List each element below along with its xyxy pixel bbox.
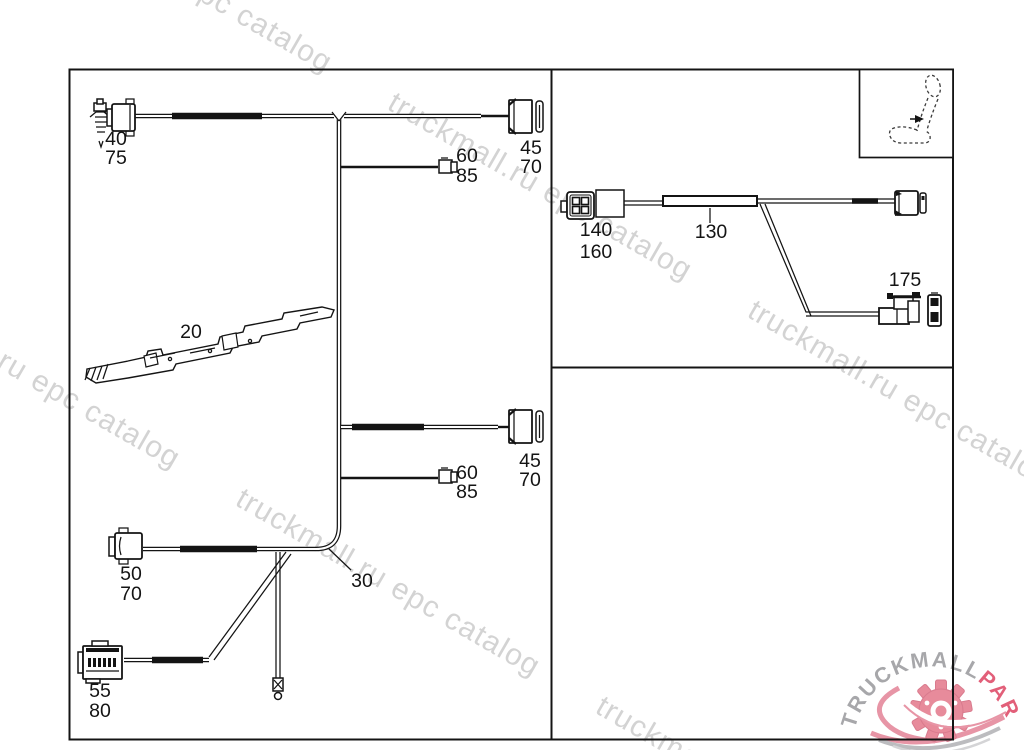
seat-reference-box — [860, 70, 954, 158]
callout-80[interactable]: 80 — [89, 700, 111, 722]
callout-30[interactable]: 30 — [351, 570, 373, 592]
diagram-canvas: TRUCKMALLPARTS — [0, 0, 1024, 750]
connector-50-70 — [109, 528, 142, 564]
connector-housing-box — [596, 190, 624, 217]
callout-130[interactable]: 130 — [695, 221, 728, 243]
connector-60-85-mid — [439, 468, 457, 483]
callout-55[interactable]: 55 — [89, 680, 111, 702]
panel-frame — [70, 70, 954, 740]
callout-175[interactable]: 175 — [889, 269, 922, 291]
callout-70-top[interactable]: 70 — [520, 156, 542, 178]
callout-85-mid[interactable]: 85 — [456, 481, 478, 503]
callout-85-top[interactable]: 85 — [456, 165, 478, 187]
epc-catalog-diagram-page: truckmall.ru epc catalogtruckmall.ru epc… — [0, 0, 1024, 750]
callout-labels: 40 75 45 70 60 85 20 45 70 60 85 50 70 3… — [89, 128, 921, 722]
connector-55-80 — [78, 641, 122, 683]
callout-160[interactable]: 160 — [580, 241, 613, 263]
callout-70-bottom[interactable]: 70 — [120, 583, 142, 605]
terminal-end — [273, 678, 283, 700]
connector-175 — [879, 292, 941, 326]
seat-rail-part-20 — [85, 307, 334, 383]
leader-line-30 — [329, 549, 351, 570]
callout-60-top[interactable]: 60 — [456, 145, 478, 167]
callout-75[interactable]: 75 — [105, 147, 127, 169]
callout-20[interactable]: 20 — [180, 321, 202, 343]
callout-140[interactable]: 140 — [580, 219, 613, 241]
callout-70-mid[interactable]: 70 — [519, 469, 541, 491]
adapter-harness-wiring — [597, 196, 896, 316]
connector-45-70-mid — [509, 409, 543, 444]
connector-140-160 — [561, 190, 624, 219]
connector-top-right-end — [895, 191, 926, 216]
wire-sleeve-130 — [663, 196, 757, 206]
callout-50[interactable]: 50 — [120, 563, 142, 585]
connector-60-85-top — [439, 158, 457, 173]
connector-45-70-top — [509, 99, 543, 134]
outer-border — [70, 70, 954, 740]
